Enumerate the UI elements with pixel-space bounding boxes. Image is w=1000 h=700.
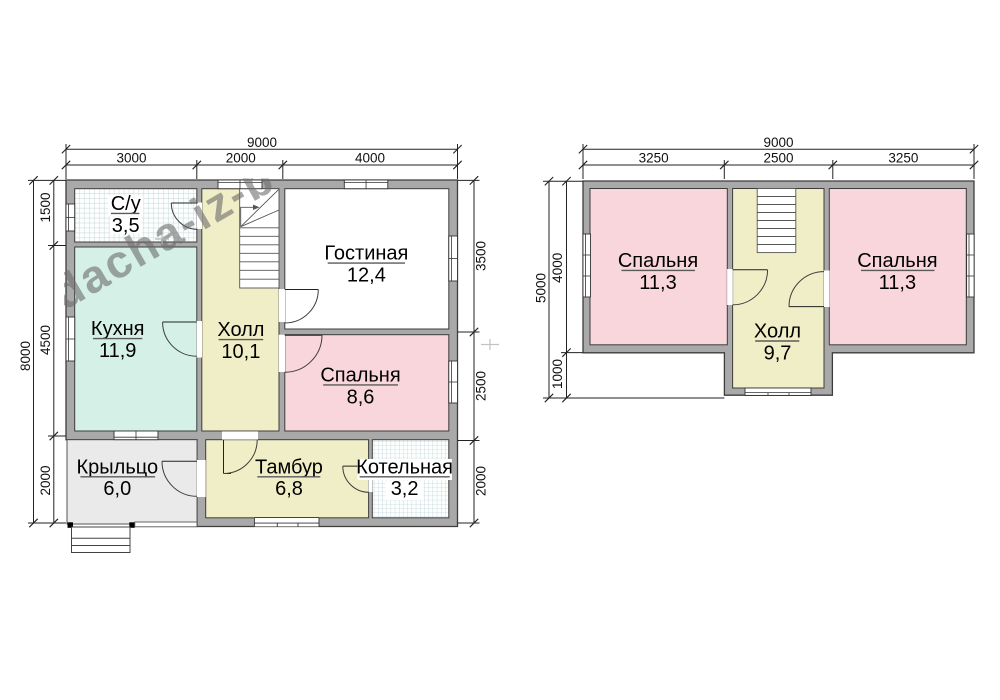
svg-text:3500: 3500 [474, 241, 489, 271]
svg-text:3000: 3000 [116, 151, 146, 166]
svg-text:4000: 4000 [550, 253, 565, 283]
svg-text:6,8: 6,8 [275, 478, 303, 500]
svg-text:5000: 5000 [534, 273, 549, 303]
svg-text:9,7: 9,7 [764, 342, 792, 364]
svg-text:9000: 9000 [763, 135, 793, 150]
svg-text:Спальня: Спальня [320, 365, 400, 387]
svg-text:Тамбур: Тамбур [255, 456, 323, 478]
svg-text:2000: 2000 [38, 465, 53, 495]
svg-text:11,3: 11,3 [879, 272, 916, 294]
svg-text:11,3: 11,3 [639, 272, 676, 294]
svg-text:1000: 1000 [550, 359, 565, 389]
svg-text:3,2: 3,2 [391, 478, 419, 500]
svg-text:2500: 2500 [763, 151, 793, 166]
svg-text:10,1: 10,1 [221, 341, 260, 363]
svg-text:8000: 8000 [18, 341, 33, 371]
svg-text:1500: 1500 [38, 192, 53, 222]
svg-text:Крыльцо: Крыльцо [77, 456, 159, 478]
svg-text:12,4: 12,4 [347, 265, 386, 287]
svg-text:Холл: Холл [217, 319, 264, 341]
svg-text:Спальня: Спальня [857, 250, 937, 272]
svg-text:Гостиная: Гостиная [324, 243, 408, 265]
svg-text:3250: 3250 [888, 151, 918, 166]
svg-text:2000: 2000 [474, 466, 489, 496]
svg-text:6,0: 6,0 [103, 478, 131, 500]
svg-text:4500: 4500 [38, 325, 53, 355]
svg-text:Холл: Холл [754, 321, 801, 343]
svg-text:2500: 2500 [474, 371, 489, 401]
svg-text:4000: 4000 [355, 151, 385, 166]
svg-text:11,9: 11,9 [99, 340, 136, 362]
svg-text:С/у: С/у [111, 193, 141, 215]
svg-text:2000: 2000 [226, 151, 256, 166]
svg-text:3250: 3250 [639, 151, 669, 166]
svg-text:Кухня: Кухня [91, 318, 145, 340]
svg-text:Котельная: Котельная [356, 456, 453, 478]
svg-text:Спальня: Спальня [618, 250, 698, 272]
svg-text:9000: 9000 [247, 135, 277, 150]
svg-text:8,6: 8,6 [347, 386, 375, 408]
